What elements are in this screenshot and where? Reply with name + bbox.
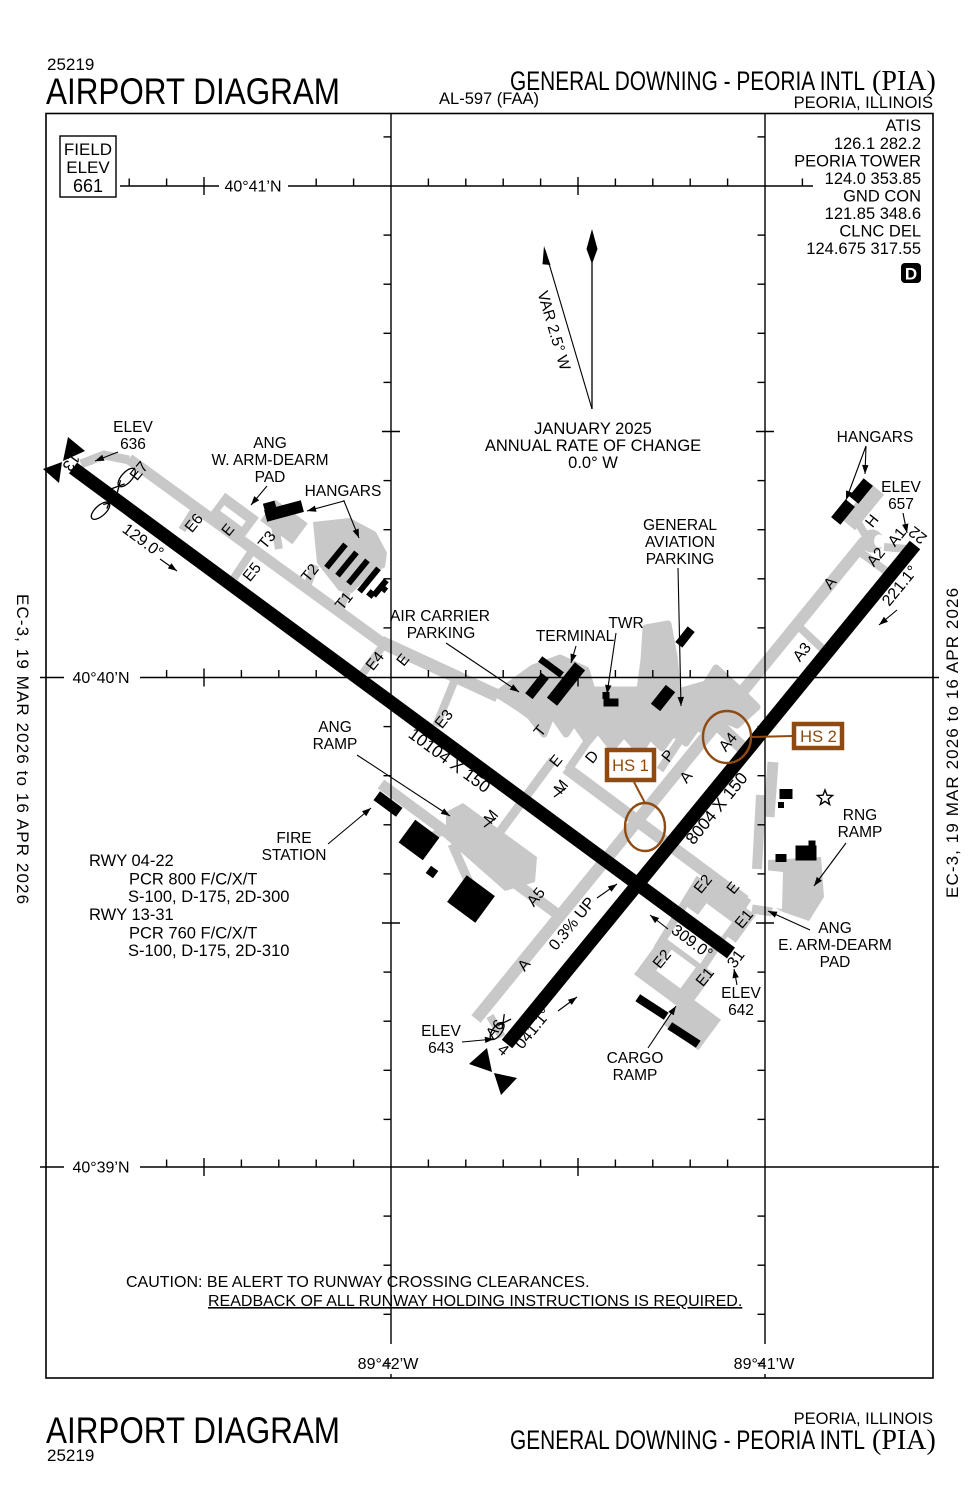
svg-text:STATION: STATION [262, 847, 327, 864]
svg-text:25219: 25219 [47, 1446, 94, 1465]
svg-text:121.85 348.6: 121.85 348.6 [825, 205, 921, 223]
svg-text:PEORIA, ILLINOIS: PEORIA, ILLINOIS [794, 94, 933, 112]
svg-text:TWR: TWR [608, 615, 643, 632]
svg-text:PCR 760 F/C/X/T: PCR 760 F/C/X/T [129, 925, 257, 943]
svg-text:124.0 353.85: 124.0 353.85 [825, 170, 921, 188]
svg-text:RWY 04-22: RWY 04-22 [89, 852, 174, 870]
svg-text:RAMP: RAMP [313, 736, 358, 753]
svg-text:RWY 13-31: RWY 13-31 [89, 906, 174, 924]
svg-text:40°40’N: 40°40’N [72, 670, 129, 687]
svg-text:AIRPORT DIAGRAM: AIRPORT DIAGRAM [46, 71, 340, 112]
svg-text:642: 642 [728, 1002, 754, 1019]
svg-text:89°42’W: 89°42’W [358, 1356, 420, 1373]
svg-text:ANNUAL RATE OF CHANGE: ANNUAL RATE OF CHANGE [485, 437, 701, 455]
svg-text:40°39’N: 40°39’N [72, 1160, 129, 1177]
svg-text:661: 661 [73, 176, 103, 196]
svg-text:RAMP: RAMP [838, 824, 883, 841]
svg-text:126.1 282.2: 126.1 282.2 [834, 135, 921, 153]
svg-text:W. ARM-DEARM: W. ARM-DEARM [211, 452, 328, 469]
svg-text:ELEV: ELEV [721, 985, 761, 1002]
svg-text:40°41’N: 40°41’N [224, 179, 281, 196]
svg-text:CAUTION: BE ALERT TO RUNWAY CR: CAUTION: BE ALERT TO RUNWAY CROSSING CLE… [126, 1274, 590, 1291]
svg-text:HS 1: HS 1 [612, 757, 649, 775]
svg-text:FIRE: FIRE [276, 830, 311, 847]
svg-text:ELEV: ELEV [421, 1023, 461, 1040]
svg-text:RAMP: RAMP [613, 1067, 658, 1084]
svg-text:ANG: ANG [318, 719, 352, 736]
svg-text:643: 643 [428, 1040, 454, 1057]
svg-text:GENERAL: GENERAL [643, 517, 717, 534]
svg-text:636: 636 [120, 436, 146, 453]
svg-text:0.0° W: 0.0° W [568, 454, 618, 472]
svg-text:GENERAL DOWNING - PEORIA INTL: GENERAL DOWNING - PEORIA INTL [510, 66, 865, 96]
svg-text:PAD: PAD [255, 469, 286, 486]
svg-text:E. ARM-DEARM: E. ARM-DEARM [778, 937, 892, 954]
svg-text:READBACK OF ALL RUNWAY HOLDING: READBACK OF ALL RUNWAY HOLDING INSTRUCTI… [208, 1293, 742, 1310]
svg-text:GENERAL DOWNING - PEORIA INTL: GENERAL DOWNING - PEORIA INTL [510, 1425, 865, 1455]
svg-text:ANG: ANG [253, 435, 287, 452]
svg-text:89°41’W: 89°41’W [734, 1356, 796, 1373]
svg-text:JANUARY 2025: JANUARY 2025 [534, 420, 652, 438]
svg-text:CLNC DEL: CLNC DEL [839, 223, 921, 241]
svg-text:(PIA): (PIA) [872, 1425, 936, 1456]
svg-text:EC-3, 19 MAR 2026 to 16 APR: EC-3, 19 MAR 2026 to 16 APR 2026 [13, 594, 32, 905]
svg-text:ELEV: ELEV [881, 479, 921, 496]
svg-text:S-100, D-175, 2D-300: S-100, D-175, 2D-300 [128, 888, 289, 906]
svg-text:PEORIA TOWER: PEORIA TOWER [794, 153, 921, 171]
svg-text:S-100, D-175, 2D-310: S-100, D-175, 2D-310 [128, 942, 289, 960]
svg-text:RNG: RNG [843, 807, 877, 824]
svg-text:657: 657 [888, 496, 914, 513]
svg-text:PARKING: PARKING [646, 551, 715, 568]
svg-text:PCR 800 F/C/X/T: PCR 800 F/C/X/T [129, 871, 257, 889]
svg-text:TERMINAL: TERMINAL [536, 628, 615, 645]
svg-text:AIR CARRIER: AIR CARRIER [390, 608, 490, 625]
svg-text:ATIS: ATIS [886, 117, 921, 135]
svg-text:AVIATION: AVIATION [645, 534, 715, 551]
svg-text:ANG: ANG [818, 920, 852, 937]
svg-text:HANGARS: HANGARS [305, 483, 382, 500]
svg-text:(PIA): (PIA) [872, 66, 936, 97]
svg-text:ELEV: ELEV [66, 158, 110, 177]
svg-text:ELEV: ELEV [113, 419, 153, 436]
svg-text:HANGARS: HANGARS [837, 429, 914, 446]
svg-text:CARGO: CARGO [607, 1050, 664, 1067]
svg-text:D: D [905, 265, 917, 284]
svg-text:PARKING: PARKING [407, 625, 476, 642]
svg-text:124.675 317.55: 124.675 317.55 [806, 240, 921, 258]
svg-text:HS 2: HS 2 [800, 728, 837, 746]
svg-text:EC-3, 19 MAR 2026 to 16 APR: EC-3, 19 MAR 2026 to 16 APR 2026 [943, 587, 962, 898]
svg-text:GND CON: GND CON [843, 188, 921, 206]
svg-text:FIELD: FIELD [64, 140, 112, 159]
svg-text:PAD: PAD [820, 954, 851, 971]
svg-text:AIRPORT DIAGRAM: AIRPORT DIAGRAM [46, 1410, 340, 1451]
